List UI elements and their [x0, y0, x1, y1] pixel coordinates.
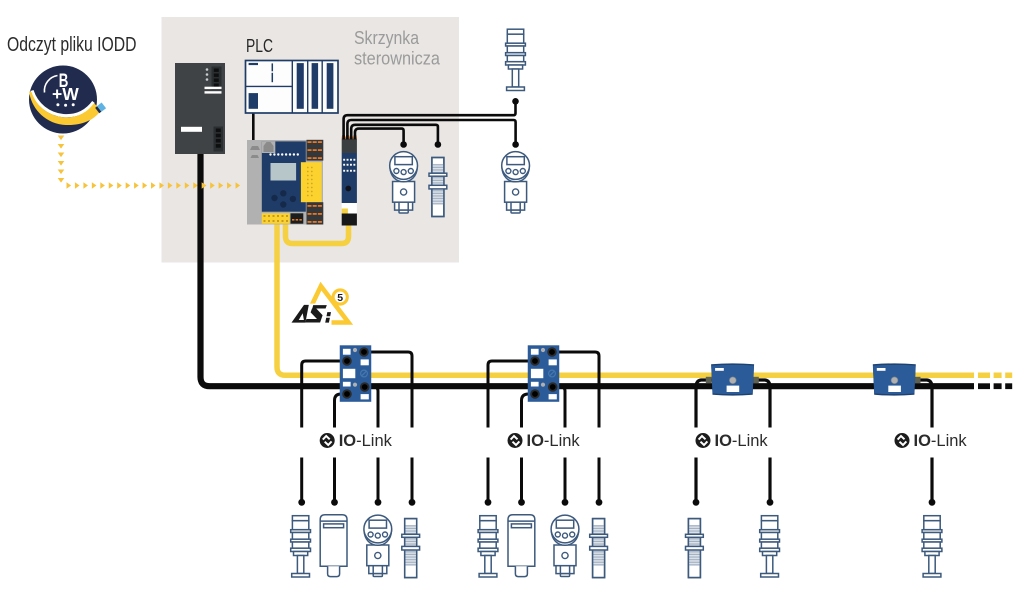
svg-text:PLC: PLC	[246, 36, 273, 56]
svg-text:sterownicza: sterownicza	[354, 49, 441, 69]
svg-text:+W: +W	[52, 84, 79, 104]
svg-text:Odczyt pliku IODD: Odczyt pliku IODD	[7, 33, 137, 56]
svg-text:5: 5	[337, 292, 343, 304]
svg-text:Skrzynka: Skrzynka	[354, 28, 420, 48]
